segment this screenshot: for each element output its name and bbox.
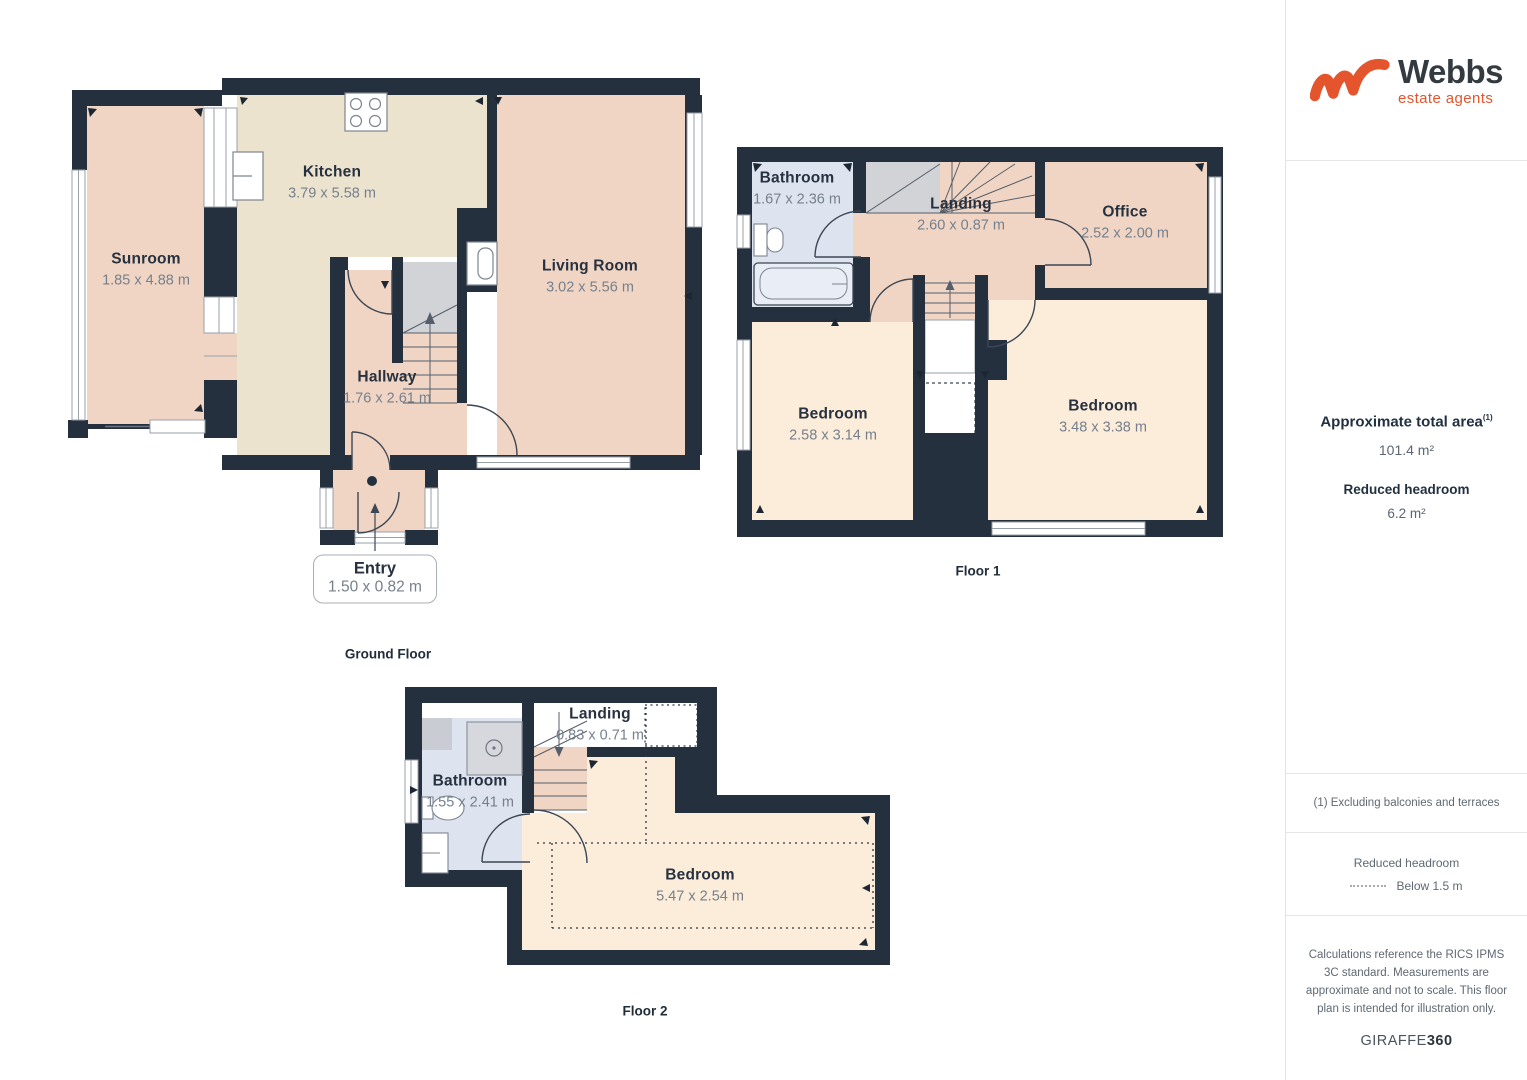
cupboard: [920, 383, 975, 435]
room-label-bedroom-left: Bedroom 2.58 x 3.14 m: [789, 404, 877, 447]
entry-marker-dot: [367, 476, 377, 486]
room-label-office: Office 2.52 x 2.00 m: [1081, 202, 1169, 245]
disclaimer-text: Calculations reference the RICS IPMS 3C …: [1303, 947, 1510, 1018]
agency-logo: Webbs estate agents: [1286, 0, 1527, 160]
toilet-icon: [754, 224, 767, 256]
plan-area: Sunroom 1.85 x 4.88 m Kitchen 3.79 x 5.5…: [0, 0, 1285, 1080]
reduced-headroom-title: Reduced headroom: [1343, 482, 1469, 497]
total-area-value: 101.4 m²: [1379, 442, 1434, 458]
reduced-headroom-outline: [645, 705, 697, 746]
ground-floor-label: Ground Floor: [345, 647, 431, 662]
floor2-label: Floor 2: [622, 1004, 667, 1019]
room-label-landing-f2: Landing 0.83 x 0.71 m: [556, 704, 644, 747]
stove-icon: [345, 93, 387, 131]
ground-floor-plan: [68, 78, 702, 551]
legend-value: Below 1.5 m: [1396, 879, 1462, 893]
footnote-marker: (1): [1483, 413, 1493, 422]
room-label-entry: Entry 1.50 x 0.82 m: [313, 555, 437, 604]
floor1-label: Floor 1: [955, 564, 1000, 579]
room-label-bedroom-right: Bedroom 3.48 x 3.38 m: [1059, 396, 1147, 439]
floorplan-page: Sunroom 1.85 x 4.88 m Kitchen 3.79 x 5.5…: [0, 0, 1527, 1080]
floor2-stairs-floor: [534, 747, 587, 810]
area-summary-section: Approximate total area(1) 101.4 m² Reduc…: [1286, 160, 1527, 773]
floor2-plan: [405, 687, 890, 965]
fireplace-inner: [478, 248, 493, 279]
cabinet: [422, 718, 452, 750]
floorplan-drawing: [0, 0, 1285, 1080]
footnote-section: (1) Excluding balconies and terraces: [1286, 773, 1527, 832]
room-label-living-room: Living Room 3.02 x 5.56 m: [542, 256, 638, 299]
room-label-bathroom-f2: Bathroom 1.55 x 2.41 m: [426, 771, 514, 814]
agency-name: Webbs: [1398, 55, 1503, 88]
room-label-hallway: Hallway 1.76 x 2.61 m: [343, 367, 431, 410]
room-label-sunroom: Sunroom 1.85 x 4.88 m: [102, 249, 190, 292]
legend-section: Reduced headroom Below 1.5 m: [1286, 832, 1527, 915]
agency-tagline: estate agents: [1398, 91, 1503, 106]
room-label-landing-f1: Landing 2.60 x 0.87 m: [917, 194, 1005, 237]
stairwell-void: [925, 320, 975, 373]
room-label-kitchen: Kitchen 3.79 x 5.58 m: [288, 162, 376, 205]
total-area-title: Approximate total area: [1320, 414, 1483, 431]
room-label-bedroom-f2: Bedroom 5.47 x 2.54 m: [656, 865, 744, 908]
legend-title: Reduced headroom: [1354, 856, 1459, 870]
reduced-headroom-value: 6.2 m²: [1387, 506, 1425, 521]
giraffe360-brand: GIRAFFE360: [1360, 1033, 1452, 1049]
dotted-line-icon: [1350, 885, 1386, 887]
sliding-door: [150, 420, 205, 433]
entry-floor: [333, 470, 425, 532]
info-sidebar: Webbs estate agents Approximate total ar…: [1285, 0, 1527, 1080]
room-label-bathroom-f1: Bathroom 1.67 x 2.36 m: [753, 168, 841, 211]
window: [204, 108, 237, 207]
disclaimer-section: Calculations reference the RICS IPMS 3C …: [1286, 915, 1527, 1080]
webbs-logo-icon: [1310, 54, 1390, 106]
footnote-text: (1) Excluding balconies and terraces: [1313, 797, 1499, 809]
